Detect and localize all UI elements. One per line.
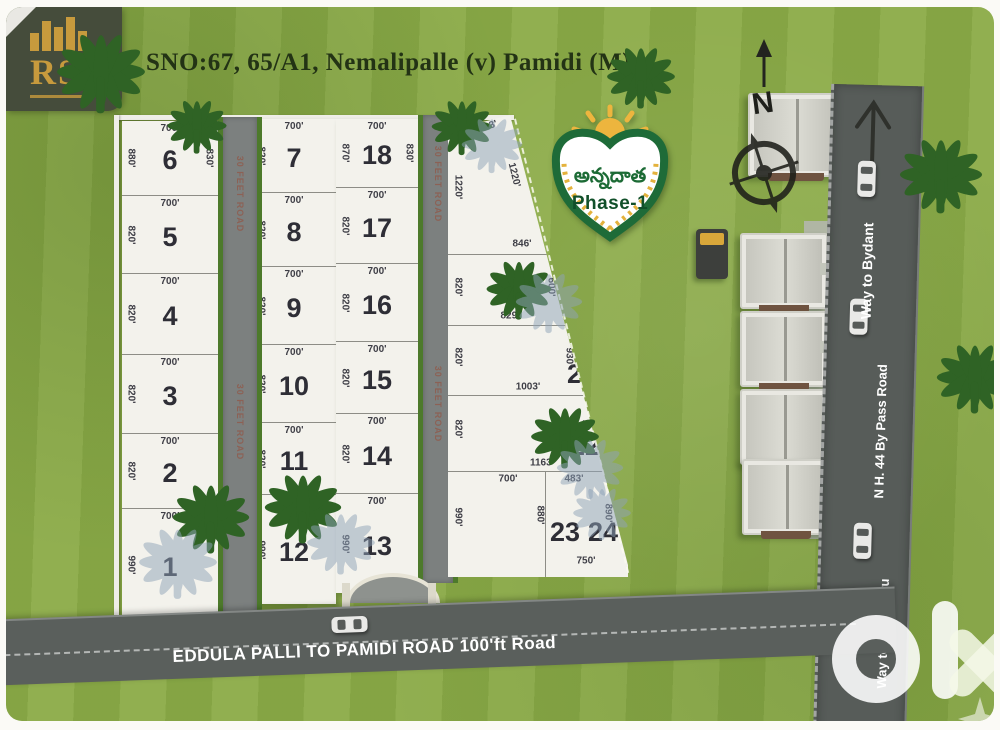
- plot-17-top-dim: 700': [336, 190, 418, 201]
- plot-17-number: 17: [336, 212, 418, 243]
- palm-shadow-icon: [124, 519, 232, 627]
- plot-16: 700'820'16: [336, 264, 418, 342]
- plot-14-top-dim: 700': [336, 416, 418, 427]
- palm-tree-icon: [884, 129, 994, 243]
- plot-21-left-dim: 820': [453, 347, 464, 366]
- plot-18-top-dim: 700': [336, 121, 418, 132]
- compass-north-label: N: [750, 86, 776, 123]
- plot-5: 700'820'5: [122, 196, 218, 274]
- plot-4: 700'820'4: [122, 274, 218, 355]
- plot-5-number: 5: [122, 221, 218, 252]
- plot-3-top-dim: 700': [122, 357, 218, 368]
- palm-tree-icon: [156, 93, 238, 175]
- plot-11-top-dim: 700': [252, 425, 336, 436]
- house-icon: [742, 459, 830, 535]
- corner-fold: [6, 7, 36, 37]
- listing-photo-frame: RS SNO:67, 65/A1, Nemalipalle (v) Pamidi…: [0, 0, 1000, 730]
- plot-20-left-dim: 820': [453, 277, 464, 296]
- plot-19-bottom-dim: 846': [512, 239, 531, 250]
- compass: N: [722, 35, 818, 215]
- palm-shadow-icon: [503, 265, 595, 357]
- plot-16-number: 16: [336, 289, 418, 320]
- palm-tree-icon: [594, 39, 688, 133]
- palm-shadow-icon: [562, 481, 642, 561]
- plot-3-number: 3: [122, 381, 218, 412]
- palm-shadow-icon: [294, 505, 388, 599]
- house-icon: [740, 311, 828, 387]
- plot-9: 700'820'9: [252, 267, 336, 345]
- olx-o: [832, 615, 920, 703]
- way-to-north-label: Way to Bydant: [858, 222, 877, 319]
- north-arrow-icon: [756, 39, 772, 87]
- plot-15-top-dim: 700': [336, 344, 418, 355]
- car-icon: [331, 616, 368, 633]
- sparkle-icon: [958, 697, 994, 721]
- house-icon: [740, 389, 828, 465]
- car-icon: [853, 523, 872, 559]
- plot-21-bottom-dim: 1003': [516, 382, 541, 393]
- bottom-road-label: EDDULA PALLI TO PAMIDI ROAD 100'ft Road: [172, 633, 556, 667]
- plot-7-number: 7: [252, 142, 336, 173]
- plot-10-top-dim: 700': [252, 347, 336, 358]
- car-icon: [857, 161, 876, 197]
- plot-23-top-dim: 700': [498, 474, 517, 485]
- house-icon: [740, 233, 828, 309]
- truck-icon: [696, 229, 728, 279]
- plot-7: 700'820'7: [252, 119, 336, 193]
- palm-tree-icon: [40, 23, 162, 145]
- plot-8-top-dim: 700': [252, 195, 336, 206]
- plot-8-number: 8: [252, 216, 336, 247]
- plot-2-top-dim: 700': [122, 436, 218, 447]
- highway-name-label: N H. 44 By Pass Road: [871, 364, 890, 499]
- plot-16-top-dim: 700': [336, 266, 418, 277]
- survey-title: SNO:67, 65/A1, Nemalipalle (v) Pamidi (M…: [146, 49, 631, 77]
- plot-4-top-dim: 700': [122, 276, 218, 287]
- plot-5-top-dim: 700': [122, 198, 218, 209]
- badge-phase-text: Phase-1: [542, 193, 678, 215]
- olx-watermark: [830, 593, 994, 721]
- palm-shadow-icon: [450, 111, 534, 195]
- plot-9-number: 9: [252, 292, 336, 323]
- badge-telugu-text: అన్నదాత: [542, 165, 678, 192]
- palm-tree-icon: [922, 335, 994, 441]
- internal-road-label: 30 FEET ROAD: [433, 366, 443, 443]
- plot-15: 700'820'15: [336, 342, 418, 414]
- plot-8: 700'820'8: [252, 193, 336, 267]
- plot-22-left-dim: 820': [453, 419, 464, 438]
- plot-18-number: 18: [336, 140, 418, 171]
- plot-15-number: 15: [336, 364, 418, 395]
- plot-3: 700'820'3: [122, 355, 218, 434]
- plot-17: 700'820'17: [336, 188, 418, 264]
- internal-road-label: 30 FEET ROAD: [235, 384, 245, 461]
- plot-10: 700'820'10: [252, 345, 336, 423]
- layout-plan-canvas: RS SNO:67, 65/A1, Nemalipalle (v) Pamidi…: [6, 7, 994, 721]
- plot-23-left-dim: 990': [453, 507, 464, 526]
- plot-18: 700'870'830'18: [336, 119, 418, 188]
- plot-9-top-dim: 700': [252, 269, 336, 280]
- plot-10-number: 10: [252, 370, 336, 401]
- compass-rose-icon: [722, 122, 811, 215]
- compound-wall-left: [114, 115, 119, 615]
- plot-7-top-dim: 700': [252, 121, 336, 132]
- plot-4-number: 4: [122, 301, 218, 332]
